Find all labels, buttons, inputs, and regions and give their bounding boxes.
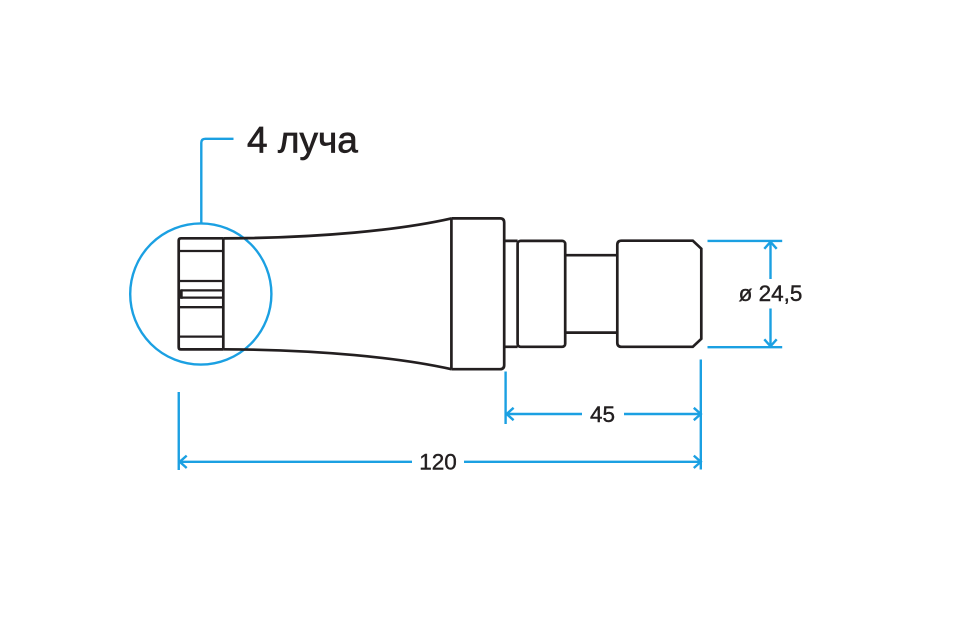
- svg-text:ø 24,5: ø 24,5: [739, 281, 803, 306]
- svg-text:4 луча: 4 луча: [247, 119, 358, 160]
- svg-text:45: 45: [590, 402, 615, 427]
- svg-text:120: 120: [419, 449, 457, 474]
